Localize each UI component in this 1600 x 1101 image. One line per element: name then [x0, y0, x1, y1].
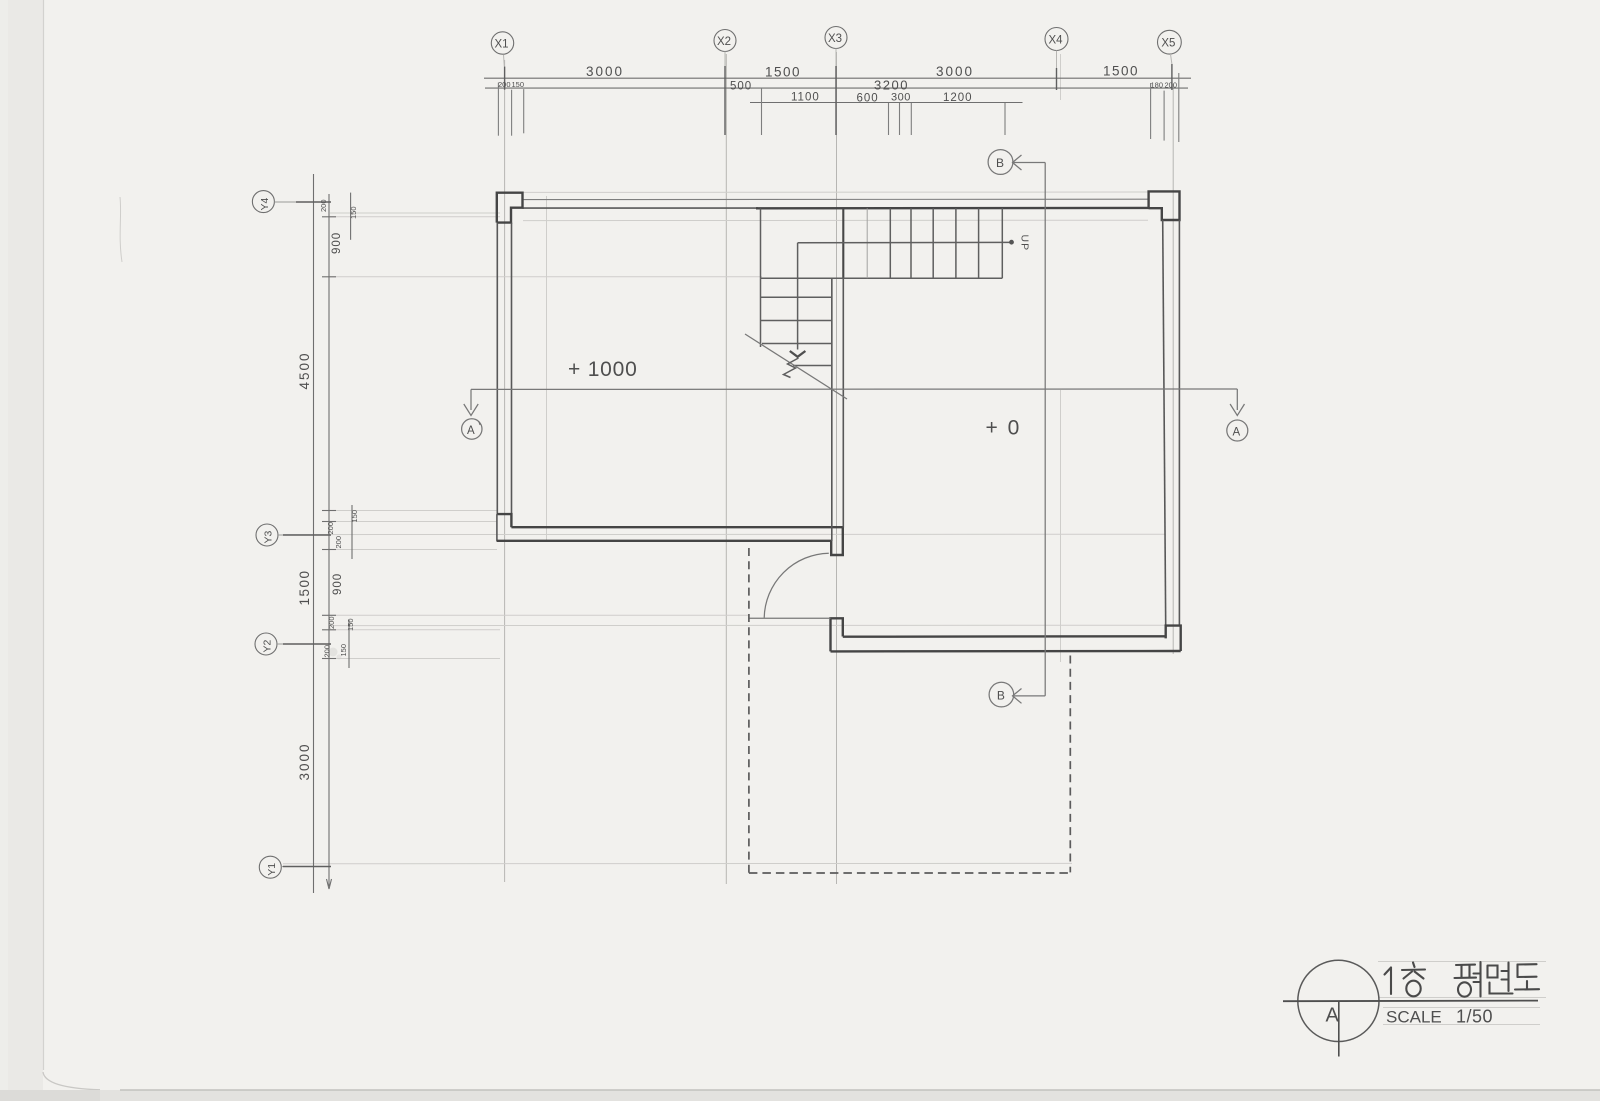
svg-text:200: 200 — [326, 522, 335, 535]
svg-text:A: A — [467, 425, 475, 437]
svg-text:1500: 1500 — [1103, 64, 1139, 79]
svg-text:150: 150 — [349, 206, 358, 219]
svg-text:X2: X2 — [717, 36, 731, 48]
svg-text:B: B — [997, 689, 1005, 703]
svg-text:Y2: Y2 — [262, 639, 274, 652]
svg-text:300: 300 — [891, 92, 911, 104]
svg-text:3200: 3200 — [874, 78, 909, 93]
svg-text:X3: X3 — [828, 33, 842, 45]
svg-text:+ 1000: + 1000 — [568, 358, 638, 381]
svg-text:150: 150 — [346, 618, 355, 631]
svg-text:SCALE: SCALE — [1386, 1008, 1442, 1027]
svg-text:150: 150 — [512, 80, 525, 89]
svg-text:180: 180 — [1151, 81, 1164, 90]
svg-text:900: 900 — [331, 232, 343, 254]
svg-text:UP: UP — [1019, 235, 1031, 252]
svg-text:1/50: 1/50 — [1456, 1007, 1493, 1027]
svg-text:150: 150 — [339, 644, 348, 657]
svg-text:Y4: Y4 — [259, 197, 271, 210]
svg-text:3000: 3000 — [586, 64, 624, 79]
svg-text:B: B — [996, 156, 1004, 170]
svg-text:A: A — [1326, 1005, 1340, 1027]
svg-text:1200: 1200 — [943, 92, 973, 104]
svg-text:4500: 4500 — [297, 351, 312, 389]
svg-text:Y3: Y3 — [263, 530, 275, 543]
svg-text:1500: 1500 — [765, 65, 801, 80]
svg-text:150: 150 — [350, 510, 359, 523]
svg-text:200: 200 — [319, 199, 328, 212]
svg-text:200: 200 — [327, 616, 336, 629]
svg-text:1100: 1100 — [791, 92, 820, 104]
svg-text:900: 900 — [332, 573, 344, 595]
svg-text:200: 200 — [498, 80, 511, 89]
svg-text:200: 200 — [334, 536, 343, 549]
svg-text:A: A — [1233, 427, 1241, 439]
svg-text:X4: X4 — [1049, 35, 1064, 47]
svg-text:200: 200 — [323, 645, 332, 658]
svg-text:200: 200 — [1165, 81, 1178, 90]
svg-text:3000: 3000 — [297, 742, 312, 780]
svg-text:500: 500 — [730, 81, 752, 93]
svg-text:Y1: Y1 — [266, 863, 278, 876]
svg-text:1500: 1500 — [297, 569, 312, 605]
svg-text:X5: X5 — [1161, 38, 1175, 50]
svg-text:+ 0: + 0 — [986, 417, 1022, 440]
svg-text:3000: 3000 — [936, 64, 974, 79]
svg-text:X1: X1 — [495, 39, 509, 51]
svg-text:600: 600 — [857, 93, 879, 105]
